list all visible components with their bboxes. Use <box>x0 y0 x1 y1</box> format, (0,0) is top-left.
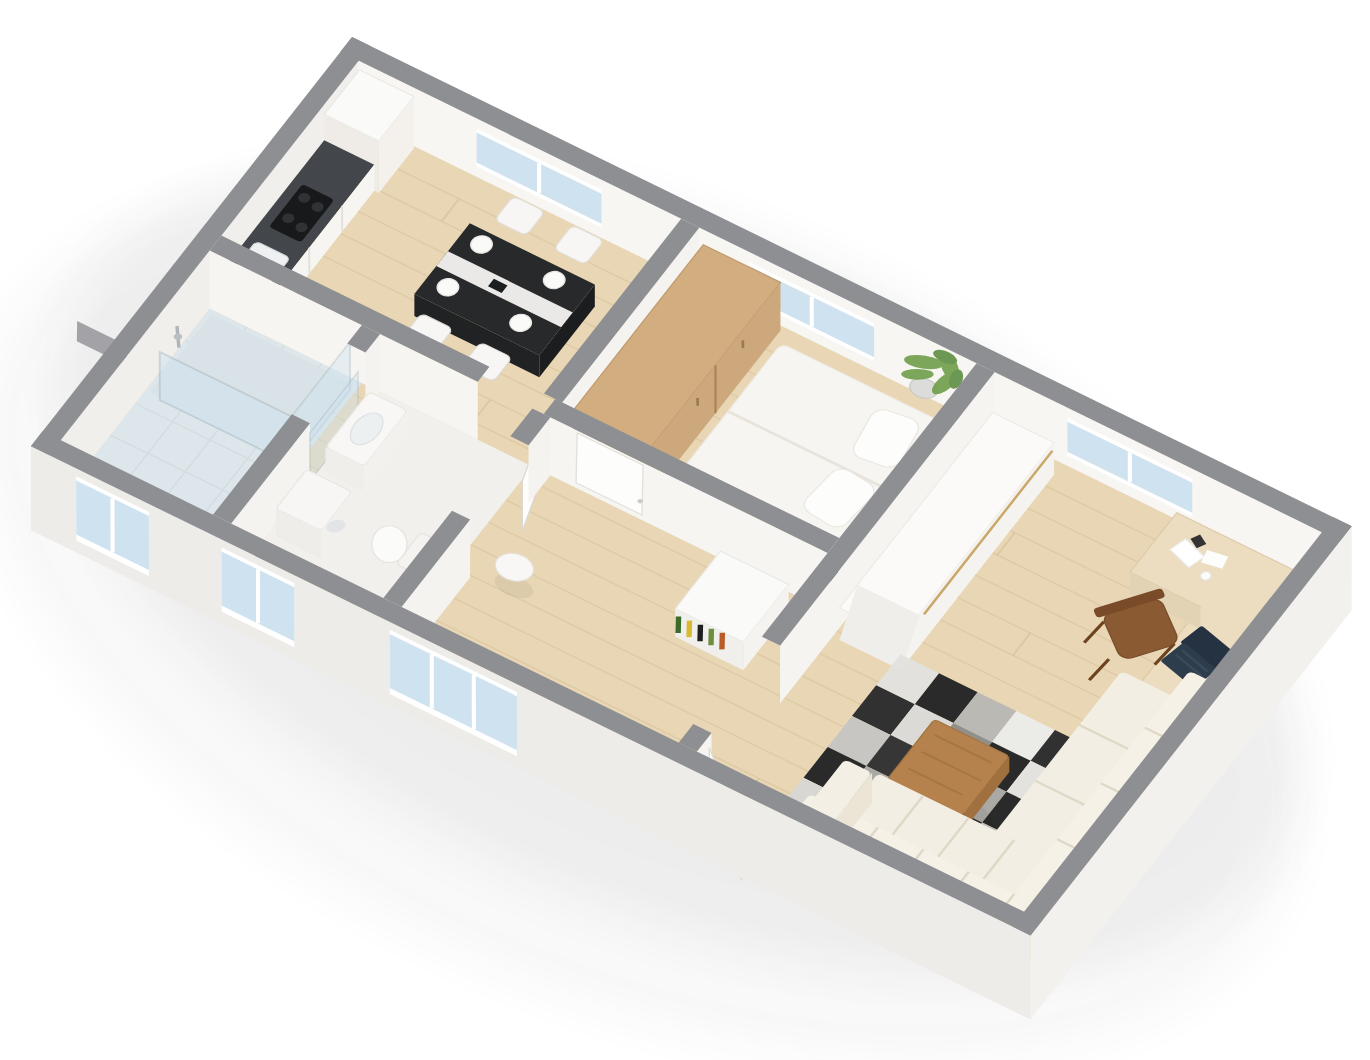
floor-plan-rendering <box>0 0 1370 1060</box>
